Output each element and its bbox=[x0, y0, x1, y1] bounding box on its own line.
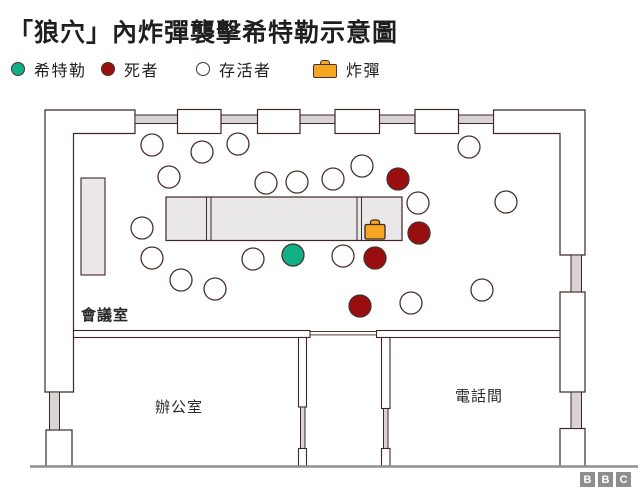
wall-left-bottom bbox=[46, 430, 72, 466]
wall-right-mid bbox=[560, 292, 585, 392]
bomb-icon bbox=[365, 225, 385, 240]
survivor-marker bbox=[158, 166, 180, 188]
dead-marker bbox=[387, 168, 409, 190]
survivor-marker bbox=[400, 292, 422, 314]
survivor-marker bbox=[471, 279, 493, 301]
bbc-logo-letter: C bbox=[616, 472, 631, 487]
bbc-logo: B B C bbox=[580, 472, 631, 487]
survivor-marker bbox=[458, 136, 480, 158]
interior-wall bbox=[299, 449, 307, 467]
window bbox=[258, 110, 301, 134]
dead-marker bbox=[364, 247, 386, 269]
survivor-marker bbox=[407, 192, 429, 214]
window bbox=[415, 110, 459, 134]
room-label-conference: 會議室 bbox=[81, 304, 129, 325]
interior-wall bbox=[382, 338, 391, 409]
window-band bbox=[300, 115, 335, 124]
survivor-marker bbox=[495, 191, 517, 213]
survivor-marker bbox=[227, 133, 249, 155]
interior-wall bbox=[299, 338, 307, 408]
wall-right-bottom bbox=[560, 429, 585, 467]
room-label-phone: 電話間 bbox=[455, 385, 503, 406]
radiator bbox=[571, 392, 582, 429]
infographic: 「狼穴」內炸彈襲擊希特勒示意圖 希特勒 死者 存活者 炸彈 會議室 辦公室 電話… bbox=[0, 0, 640, 490]
radiator bbox=[301, 407, 306, 449]
survivor-marker bbox=[141, 134, 163, 156]
survivor-marker bbox=[204, 278, 226, 300]
sideboard bbox=[81, 178, 105, 275]
radiator bbox=[50, 392, 60, 430]
hitler-marker bbox=[282, 244, 304, 266]
bbc-logo-letter: B bbox=[598, 472, 613, 487]
survivor-marker bbox=[255, 172, 277, 194]
window bbox=[178, 110, 222, 134]
window bbox=[335, 110, 380, 134]
door-passage bbox=[310, 332, 377, 335]
bbc-logo-letter: B bbox=[580, 472, 595, 487]
survivor-marker bbox=[141, 247, 163, 269]
interior-wall bbox=[382, 449, 391, 467]
survivor-marker bbox=[131, 217, 153, 239]
floorplan-svg bbox=[0, 0, 640, 490]
window-band bbox=[135, 115, 178, 124]
survivor-marker bbox=[351, 155, 373, 177]
window-band bbox=[380, 115, 416, 124]
interior-wall bbox=[74, 331, 311, 338]
survivor-marker bbox=[286, 171, 308, 193]
dead-marker bbox=[349, 295, 371, 317]
radiator bbox=[384, 409, 389, 449]
room-label-office: 辦公室 bbox=[155, 396, 203, 417]
survivor-marker bbox=[191, 141, 213, 163]
dead-marker bbox=[408, 222, 430, 244]
window-band bbox=[221, 115, 258, 124]
survivor-marker bbox=[242, 248, 264, 270]
survivor-marker bbox=[170, 269, 192, 291]
window-band bbox=[459, 115, 494, 124]
wall-right bbox=[494, 110, 586, 255]
survivor-marker bbox=[332, 245, 354, 267]
radiator bbox=[571, 255, 582, 292]
interior-wall bbox=[377, 331, 561, 338]
survivor-marker bbox=[322, 168, 344, 190]
